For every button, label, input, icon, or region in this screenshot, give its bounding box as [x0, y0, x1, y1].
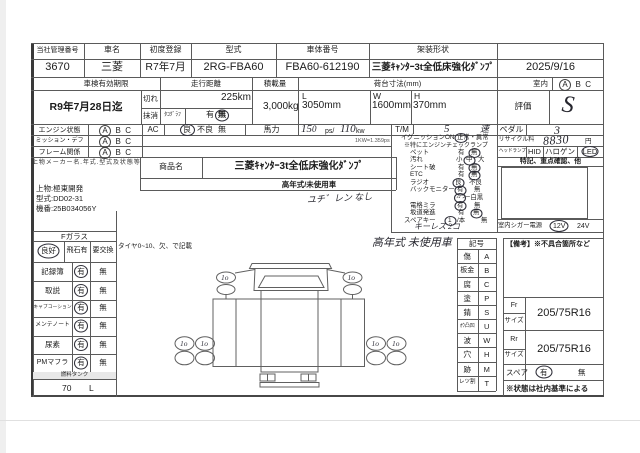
svg-text:1o: 1o — [221, 273, 229, 282]
svg-text:1o: 1o — [372, 339, 380, 348]
svg-text:1o: 1o — [180, 339, 188, 348]
svg-text:1o: 1o — [348, 273, 356, 282]
svg-text:1o: 1o — [201, 339, 209, 348]
svg-text:1o: 1o — [392, 339, 400, 348]
